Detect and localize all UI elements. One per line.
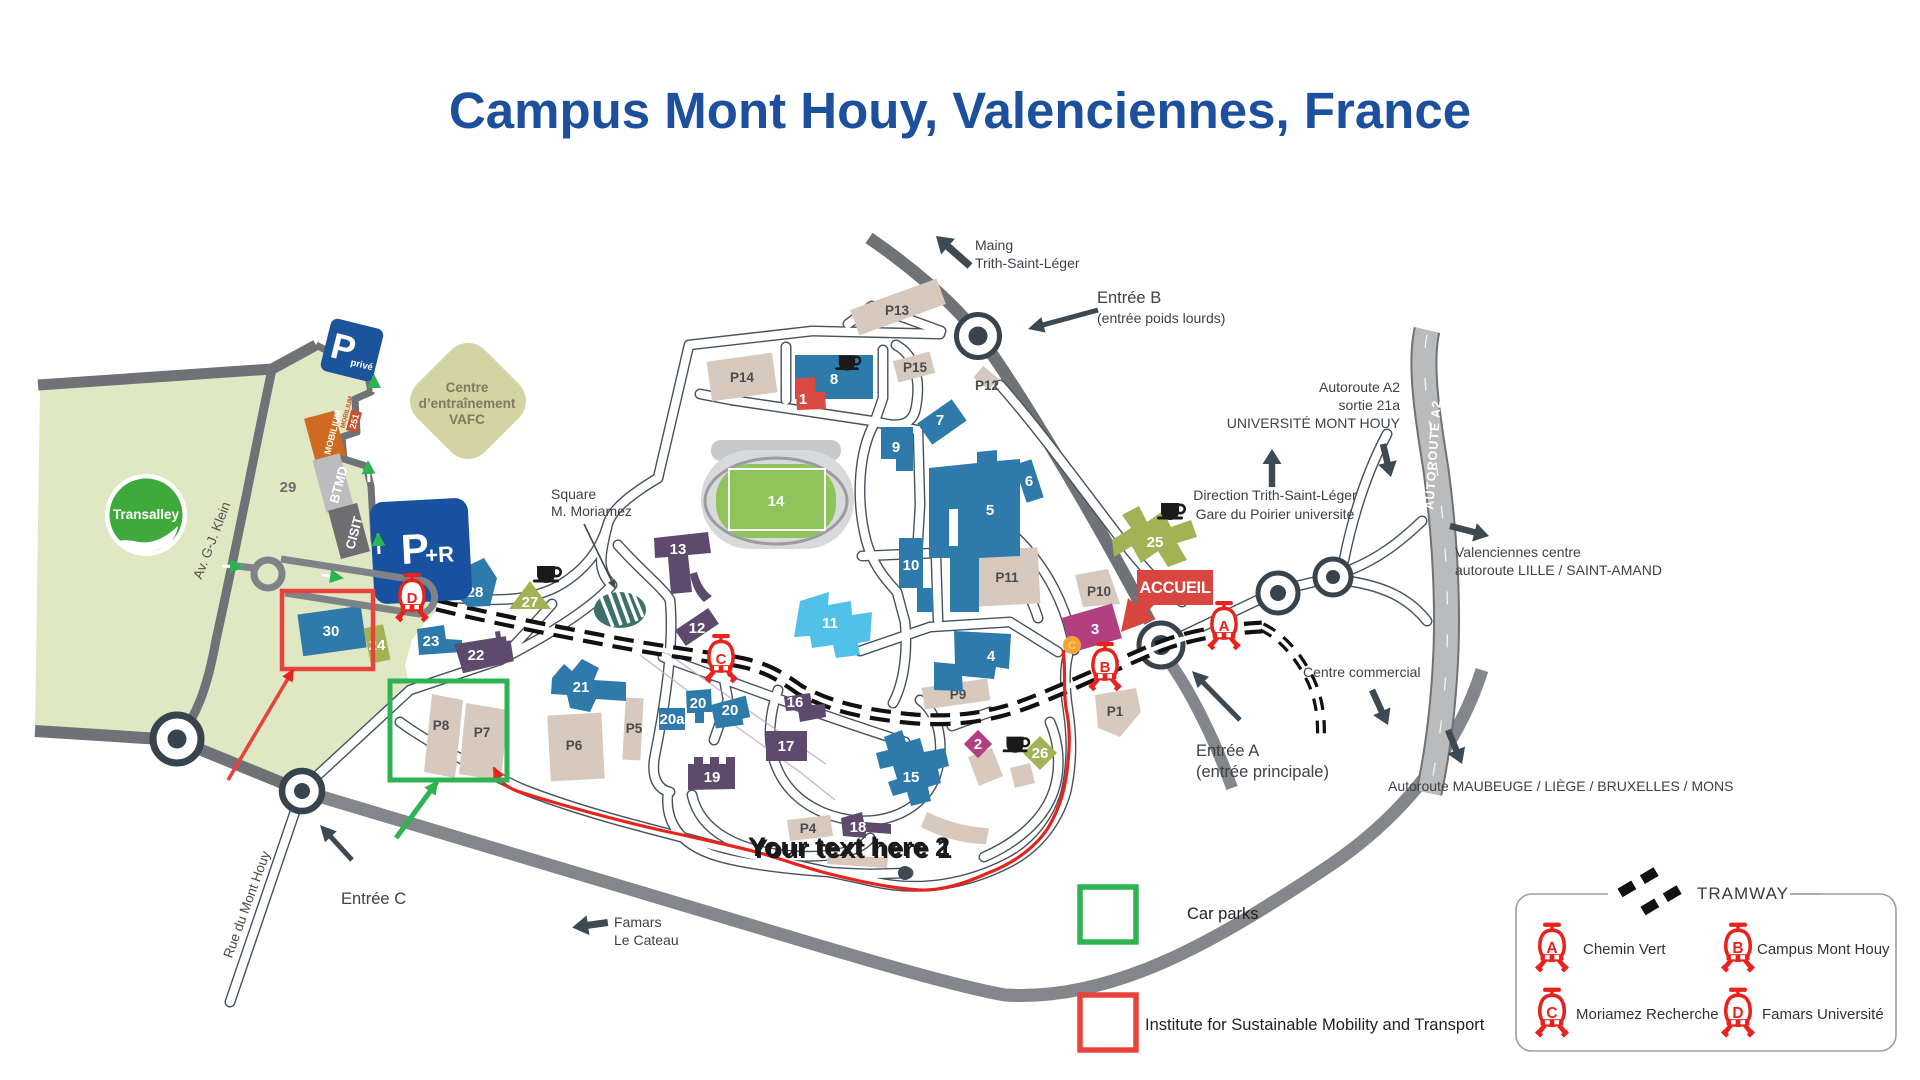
svg-text:autoroute LILLE / SAINT-AMAND: autoroute LILLE / SAINT-AMAND [1455,562,1662,578]
svg-text:P15: P15 [903,360,928,375]
svg-text:5: 5 [986,502,994,519]
svg-text:P12: P12 [975,378,999,393]
svg-text:d’entraînement: d’entraînement [419,396,516,411]
svg-text:(entrée principale): (entrée principale) [1196,763,1329,781]
svg-text:ACCUEIL: ACCUEIL [1139,579,1210,597]
svg-text:27: 27 [522,594,539,611]
svg-text:Entrée A: Entrée A [1196,742,1259,760]
svg-text:Car parks: Car parks [1187,905,1259,923]
svg-text:13: 13 [670,541,687,558]
svg-text:VAFC: VAFC [449,412,485,427]
svg-text:(entrée poids lourds): (entrée poids lourds) [1097,310,1225,326]
svg-text:29: 29 [280,479,297,496]
svg-text:10: 10 [903,557,920,574]
svg-text:Famars Université: Famars Université [1762,1006,1884,1023]
svg-text:Autoroute MAUBEUGE / LIÈGE / B: Autoroute MAUBEUGE / LIÈGE / BRUXELLES /… [1388,778,1733,794]
svg-text:20: 20 [690,695,707,712]
svg-text:Centre: Centre [446,380,489,395]
svg-text:1: 1 [799,391,807,408]
svg-text:17: 17 [778,738,795,755]
svg-text:TRAMWAY: TRAMWAY [1697,884,1789,903]
svg-text:B: B [1100,659,1111,676]
svg-text:P1: P1 [1107,704,1124,719]
svg-text:30: 30 [323,623,340,640]
svg-text:C: C [1068,640,1076,652]
svg-text:22: 22 [468,647,485,664]
svg-text:Entrée C: Entrée C [341,890,406,908]
svg-text:UNIVERSITÉ MONT HOUY: UNIVERSITÉ MONT HOUY [1227,415,1401,431]
svg-text:25: 25 [1147,534,1164,551]
svg-text:A: A [1219,618,1230,635]
svg-text:8: 8 [830,371,838,388]
svg-text:19: 19 [704,769,721,786]
svg-text:C: C [716,651,727,668]
svg-text:15: 15 [903,769,920,786]
svg-text:Campus Mont Houy: Campus Mont Houy [1757,941,1890,958]
svg-text:Le Cateau: Le Cateau [614,932,679,948]
svg-text:2: 2 [974,736,982,753]
svg-text:20a: 20a [659,711,685,728]
svg-text:Campus Mont Houy, Valenciennes: Campus Mont Houy, Valenciennes, France [449,82,1471,139]
svg-text:Moriamez Recherche: Moriamez Recherche [1576,1006,1719,1023]
svg-text:P5: P5 [626,721,643,736]
svg-text:C: C [1546,1005,1557,1022]
svg-text:P6: P6 [566,738,583,753]
svg-text:3: 3 [1091,621,1099,638]
svg-text:6: 6 [1025,473,1033,490]
svg-text:sortie 21a: sortie 21a [1339,397,1401,413]
svg-text:12: 12 [689,620,706,637]
svg-text:P10: P10 [1087,584,1111,599]
svg-text:D: D [1732,1005,1743,1022]
svg-text:11: 11 [822,615,838,632]
svg-text:Institute for Sustainable Mobi: Institute for Sustainable Mobility and T… [1145,1016,1485,1034]
svg-text:Centre commercial: Centre commercial [1303,664,1420,680]
svg-text:4: 4 [987,648,996,665]
svg-text:Chemin Vert: Chemin Vert [1583,941,1666,958]
svg-text:P13: P13 [885,303,910,318]
svg-text:Direction Trith-Saint-Léger: Direction Trith-Saint-Léger [1193,487,1357,503]
svg-text:M. Moriamez: M. Moriamez [551,503,632,519]
svg-text:Square: Square [551,486,596,502]
svg-text:Gare du Poirier université: Gare du Poirier université [1196,506,1355,522]
svg-text:Transalley: Transalley [113,507,180,522]
svg-text:P11: P11 [995,570,1019,585]
svg-text:P8: P8 [433,718,450,733]
svg-text:P14: P14 [730,370,755,385]
svg-text:Maing: Maing [975,237,1013,253]
svg-text:Valenciennes centre: Valenciennes centre [1455,544,1581,560]
svg-text:Famars: Famars [614,914,661,930]
svg-text:23: 23 [423,633,440,650]
svg-text:B: B [1732,940,1743,957]
svg-text:P7: P7 [474,725,491,740]
svg-text:Entrée B: Entrée B [1097,289,1161,307]
svg-text:16: 16 [787,694,804,711]
svg-text:26: 26 [1032,745,1049,762]
svg-text:Trith-Saint-Léger: Trith-Saint-Léger [975,255,1080,271]
svg-text:7: 7 [936,412,944,429]
svg-text:14: 14 [768,493,785,510]
svg-text:Your text here 2: Your text here 2 [748,832,950,862]
svg-text:9: 9 [892,439,900,456]
svg-text:+R: +R [425,541,455,567]
svg-text:20: 20 [722,702,739,719]
svg-text:A: A [1546,940,1557,957]
svg-text:D: D [407,590,418,607]
svg-text:21: 21 [573,679,590,696]
svg-text:Autoroute A2: Autoroute A2 [1319,379,1400,395]
